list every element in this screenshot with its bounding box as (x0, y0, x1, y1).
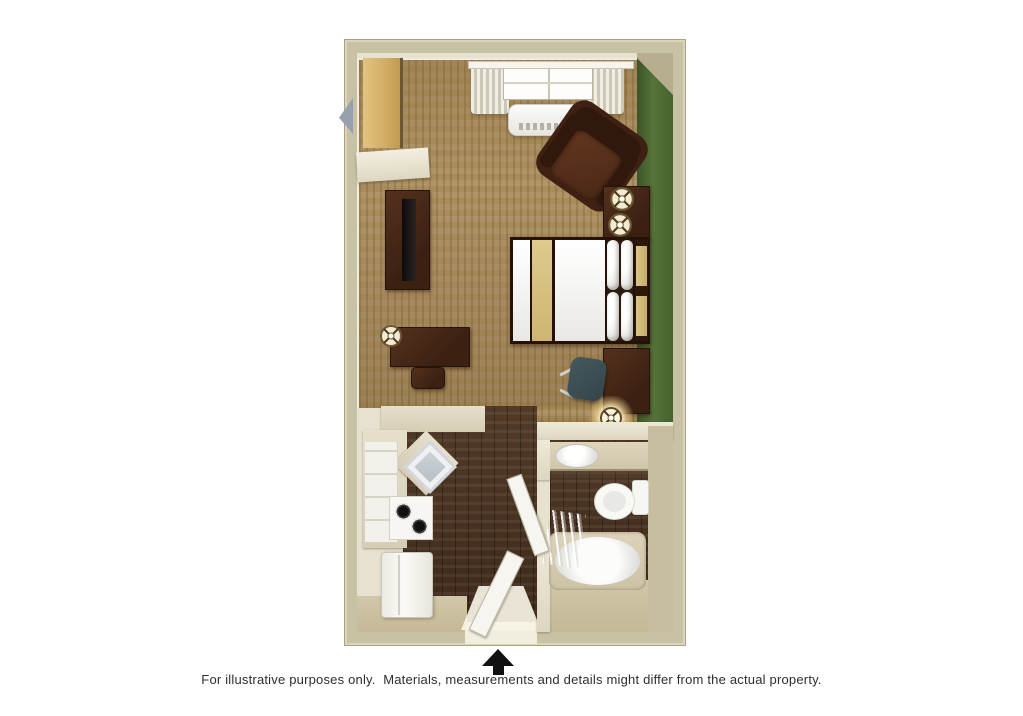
burner (411, 518, 428, 535)
pillow (607, 292, 619, 342)
shower-curtain (542, 510, 585, 568)
table-lamp-icon (607, 212, 633, 238)
kitchen-counter-bar (381, 406, 485, 432)
pillow (621, 292, 633, 342)
bed (510, 237, 650, 344)
table-lamp-icon (379, 324, 403, 348)
disclaimer-caption: For illustrative purposes only. Material… (0, 672, 1023, 687)
wall-notch (339, 98, 353, 134)
vanity-sink (555, 444, 599, 468)
shelf (356, 148, 430, 183)
fridge-seam (398, 555, 400, 615)
stove (389, 496, 433, 540)
bed-duvet (555, 240, 605, 341)
bathroom-wall-divider (537, 440, 550, 480)
bed-foot (513, 240, 530, 341)
closet (363, 58, 403, 148)
ottoman (411, 367, 445, 389)
sink-basin (414, 451, 445, 482)
floor-plan (345, 40, 685, 645)
table-lamp-icon (609, 186, 635, 212)
curtain-rod (468, 61, 634, 69)
toilet-seat (603, 491, 626, 512)
wall-bevel (637, 53, 673, 95)
bathroom-wall-right (648, 426, 673, 632)
headboard-pad (636, 296, 647, 336)
pillow (607, 240, 619, 290)
arrow-head (482, 649, 514, 666)
toilet (594, 483, 635, 520)
headboard (635, 240, 648, 341)
burner (395, 503, 412, 520)
tv (402, 199, 416, 281)
headboard-pad (636, 246, 647, 286)
pillow (621, 240, 633, 290)
vanity-shadow (550, 469, 648, 478)
window-mullion (504, 82, 592, 84)
refrigerator (381, 552, 433, 618)
tv-console (385, 190, 430, 290)
bed-runner (532, 240, 552, 341)
bed-pillows (607, 240, 633, 341)
